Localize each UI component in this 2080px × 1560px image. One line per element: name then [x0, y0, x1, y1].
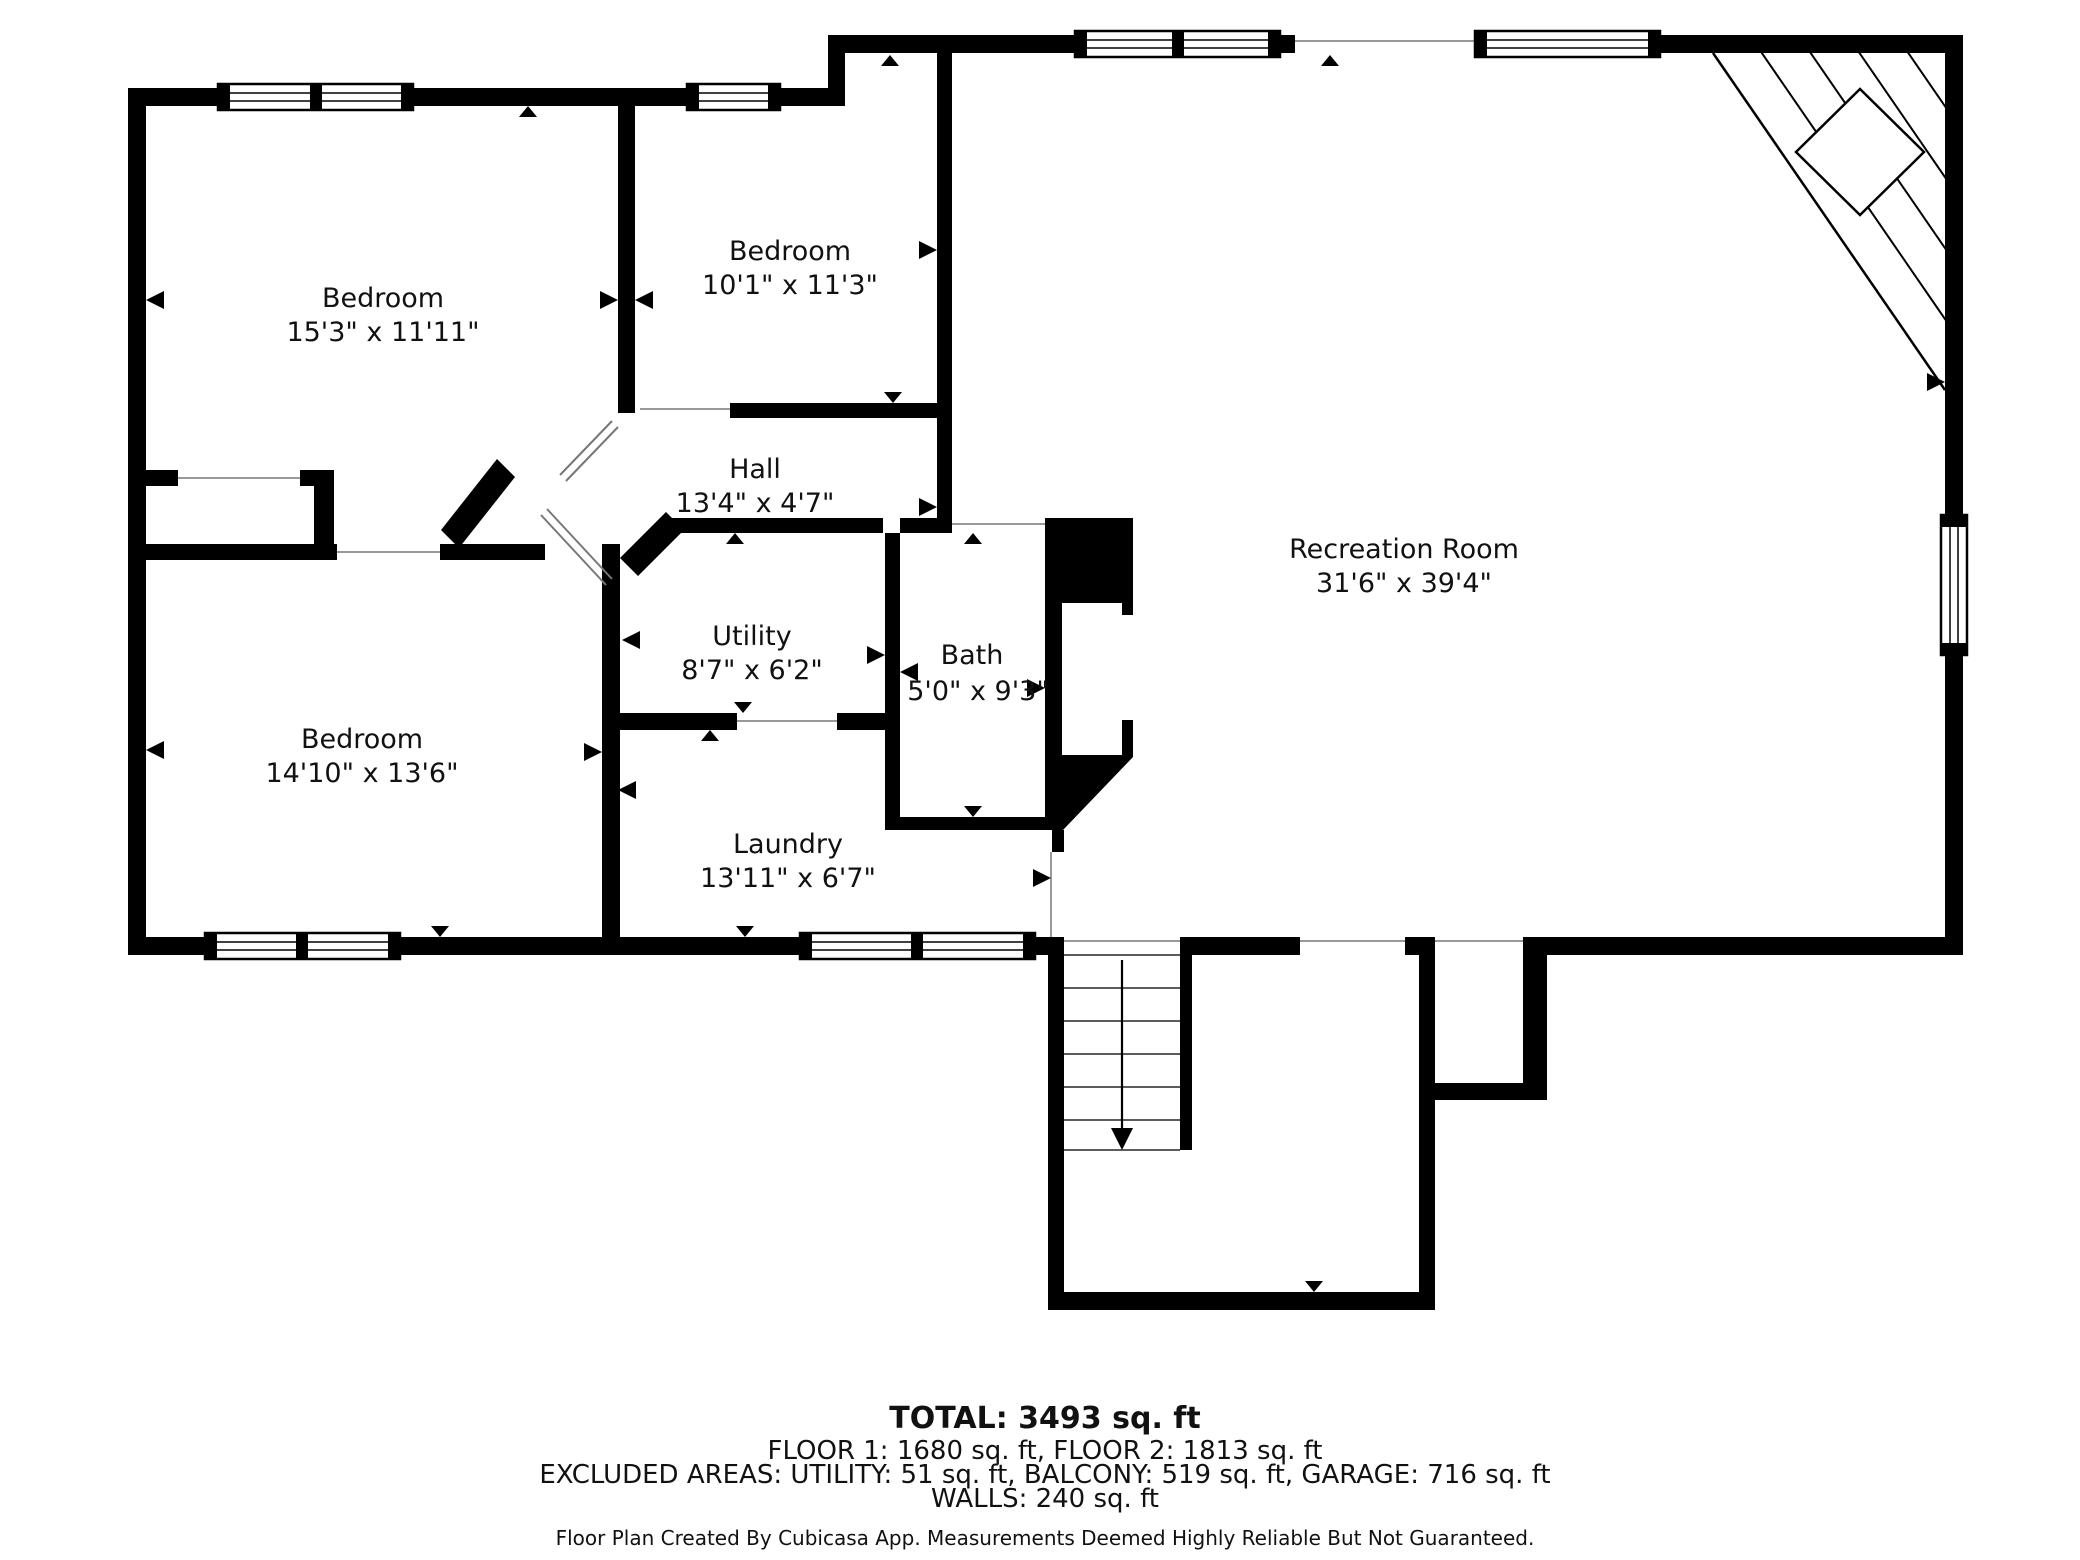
marker-down-icon	[734, 702, 752, 713]
footer-walls-area: WALLS: 240 sq. ft	[931, 1484, 1159, 1514]
marker-left-icon	[146, 291, 164, 309]
stair-side-wall	[1180, 937, 1192, 1150]
wall-step	[828, 35, 845, 106]
door-leaf-bedroom2	[566, 427, 618, 481]
staircase-down	[1064, 955, 1180, 1150]
marker-left-icon	[635, 291, 653, 309]
wall-bath-laundry	[885, 817, 1052, 830]
wall-right	[1945, 35, 1963, 955]
fireplace	[1045, 518, 1133, 830]
wall-utility-diagonal	[620, 512, 684, 576]
wall-hall-diagonal	[441, 459, 515, 548]
wall-top-b	[1660, 35, 1945, 53]
wall-bedroom1-bedroom2	[618, 106, 635, 413]
marker-right-icon	[600, 291, 618, 309]
wall-bottom	[1523, 937, 1945, 955]
marker-right-icon	[1033, 869, 1051, 887]
room-label-bedroom-2: Bedroom	[729, 236, 851, 267]
window	[1941, 515, 1967, 655]
marker-down-icon	[1305, 1281, 1323, 1292]
window	[1475, 31, 1660, 57]
room-label-bedroom-3: Bedroom	[301, 724, 423, 755]
room-dims-bath: 5'0" x 9'3"	[907, 676, 1049, 707]
floor-plan-page: Bedroom 15'3" x 11'11" Bedroom 10'1" x 1…	[0, 0, 2080, 1560]
closet-wall	[144, 544, 337, 560]
marker-down-icon	[964, 806, 982, 817]
marker-right-icon	[584, 743, 602, 761]
alcove-wall-right	[1523, 949, 1547, 1100]
door-gap-bedroom2	[640, 403, 730, 418]
room-label-recreation-room: Recreation Room	[1289, 534, 1519, 565]
fireplace-niche	[1062, 603, 1122, 755]
stair-landing	[1796, 89, 1924, 215]
extension-wall-left	[1048, 955, 1064, 1310]
wall-top-b	[1280, 35, 1295, 53]
alcove-wall-bottom	[1435, 1083, 1547, 1100]
closet-divider	[314, 486, 334, 544]
window	[218, 84, 413, 110]
window	[800, 933, 1035, 959]
interior-walls	[144, 53, 1064, 937]
wall-top-b	[845, 35, 1075, 53]
door-leaf-bedroom2	[560, 421, 612, 475]
wall-bedroom2-hall	[730, 403, 937, 418]
floor-plan-drawing: Bedroom 15'3" x 11'11" Bedroom 10'1" x 1…	[0, 0, 2080, 1560]
wall-top-a	[128, 88, 218, 106]
room-label-laundry: Laundry	[733, 829, 843, 860]
footer-total-area: TOTAL: 3493 sq. ft	[889, 1401, 1200, 1436]
marker-left-icon	[618, 781, 636, 799]
room-dims-bedroom-2: 10'1" x 11'3"	[702, 270, 878, 301]
door-gap-bath	[952, 518, 1045, 533]
wall-bottom	[1180, 937, 1300, 955]
extension-wall-right	[1419, 949, 1435, 1292]
room-label-utility: Utility	[712, 621, 791, 652]
wall-left	[128, 88, 146, 955]
corner-winder-stairs	[1713, 0, 2080, 390]
stair-direction-arrow	[1111, 1128, 1133, 1150]
room-dims-laundry: 13'11" x 6'7"	[700, 863, 876, 894]
marker-up-icon	[1321, 55, 1339, 66]
wall-stub	[1052, 830, 1064, 852]
marker-right-icon	[867, 646, 885, 664]
opening-lines	[178, 41, 1523, 941]
footer-disclaimer: Floor Plan Created By Cubicasa App. Meas…	[556, 1526, 1535, 1550]
window	[1075, 31, 1280, 57]
extension-wall-bottom	[1048, 1292, 1435, 1310]
room-label-bath: Bath	[941, 640, 1004, 671]
wall-hall-utility	[672, 518, 952, 533]
closet-wall	[300, 470, 334, 486]
marker-up-icon	[701, 730, 719, 741]
room-dims-utility: 8'7" x 6'2"	[681, 655, 823, 686]
bedroom3-top-wall	[440, 544, 545, 560]
room-dims-bedroom-3: 14'10" x 13'6"	[265, 758, 458, 789]
wall-bottom	[128, 937, 205, 955]
wall-bedroom2-recroom	[937, 53, 952, 518]
wall-top-a	[413, 88, 687, 106]
marker-down-icon	[736, 926, 754, 937]
marker-right-icon	[919, 498, 937, 516]
door-leaf-bedroom3	[541, 515, 606, 585]
wall-bottom	[1035, 937, 1064, 955]
door-gap-hall	[883, 518, 900, 533]
marker-up-icon	[519, 106, 537, 117]
marker-left-icon	[146, 741, 164, 759]
room-dims-bedroom-1: 15'3" x 11'11"	[286, 317, 479, 348]
marker-up-icon	[726, 533, 744, 544]
marker-right-icon	[919, 241, 937, 259]
marker-down-icon	[884, 392, 902, 403]
room-dims-hall: 13'4" x 4'7"	[676, 488, 835, 519]
footer: TOTAL: 3493 sq. ft FLOOR 1: 1680 sq. ft,…	[539, 1401, 1550, 1550]
marker-down-icon	[431, 926, 449, 937]
stair-edge-line	[1713, 53, 1945, 390]
fireplace-opening	[1122, 615, 1133, 720]
wall-utility-bath	[885, 518, 900, 830]
wall-bedroom3-utility	[602, 544, 620, 937]
window	[687, 84, 780, 110]
window	[205, 933, 400, 959]
marker-up-icon	[881, 55, 899, 66]
wall-bottom	[400, 937, 800, 955]
closet-wall	[144, 470, 178, 486]
marker-left-icon	[622, 631, 640, 649]
marker-up-icon	[964, 533, 982, 544]
room-dims-recreation-room: 31'6" x 39'4"	[1316, 568, 1492, 599]
room-label-bedroom-1: Bedroom	[322, 283, 444, 314]
room-label-hall: Hall	[729, 454, 781, 485]
